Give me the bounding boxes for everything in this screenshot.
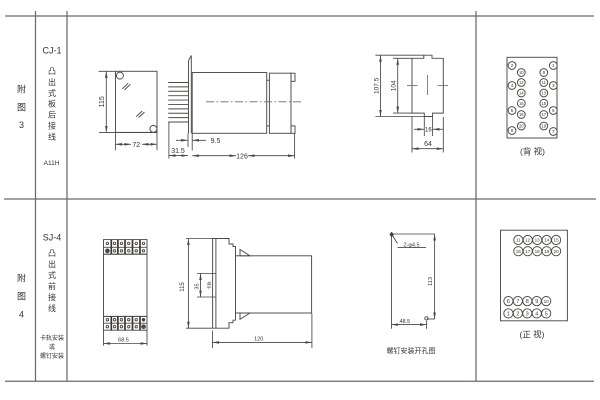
svg-text:6: 6 [511, 108, 514, 113]
svg-text:或: 或 [49, 343, 55, 351]
svg-text:19: 19 [544, 249, 550, 254]
svg-text:7: 7 [552, 129, 555, 134]
svg-text:4: 4 [535, 311, 538, 317]
svg-text:15: 15 [541, 101, 546, 106]
svg-text:图: 图 [17, 103, 26, 113]
svg-text:126: 126 [236, 153, 248, 160]
svg-text:螺钉安装: 螺钉安装 [40, 352, 64, 360]
svg-text:卡轨: 卡轨 [206, 282, 212, 290]
svg-text:3: 3 [19, 120, 24, 130]
svg-text:5: 5 [545, 311, 548, 317]
svg-text:2: 2 [511, 63, 514, 68]
svg-text:5: 5 [552, 108, 555, 113]
svg-text:20: 20 [554, 249, 560, 254]
svg-text:14: 14 [544, 238, 550, 243]
svg-text:螺钉安装开孔图: 螺钉安装开孔图 [387, 346, 436, 355]
svg-text:20: 20 [519, 124, 524, 129]
svg-text:线: 线 [48, 303, 56, 313]
svg-text:9: 9 [542, 70, 545, 75]
svg-text:8: 8 [526, 299, 529, 305]
svg-text:120: 120 [254, 337, 263, 343]
svg-text:CJ-1: CJ-1 [42, 46, 61, 56]
svg-text:7: 7 [516, 299, 519, 305]
svg-text:115: 115 [99, 96, 106, 107]
svg-text:13: 13 [535, 238, 541, 243]
svg-text:接: 接 [48, 292, 56, 302]
svg-text:10: 10 [519, 70, 524, 75]
svg-text:64: 64 [424, 141, 432, 148]
svg-text:12: 12 [519, 80, 524, 85]
svg-text:3: 3 [552, 83, 555, 88]
svg-text:17: 17 [525, 249, 531, 254]
svg-text:6: 6 [507, 299, 510, 305]
svg-text:卡轨安装: 卡轨安装 [40, 334, 64, 342]
svg-text:12: 12 [525, 238, 531, 243]
svg-text:凸: 凸 [48, 249, 56, 258]
svg-text:16: 16 [519, 101, 524, 106]
svg-text:113: 113 [428, 277, 434, 286]
svg-text:13: 13 [541, 91, 546, 96]
svg-text:115: 115 [180, 282, 186, 292]
svg-text:1: 1 [552, 63, 555, 68]
svg-text:板: 板 [48, 99, 56, 109]
svg-text:图: 图 [17, 292, 26, 302]
svg-text:48.5: 48.5 [399, 319, 410, 325]
svg-text:出: 出 [48, 77, 56, 87]
svg-text:凸: 凸 [48, 67, 56, 76]
svg-text:前: 前 [48, 281, 56, 291]
svg-text:4: 4 [19, 310, 24, 320]
svg-text:104: 104 [391, 80, 398, 91]
svg-text:107.5: 107.5 [373, 77, 380, 94]
svg-text:18: 18 [535, 249, 541, 254]
svg-text:附: 附 [17, 273, 26, 284]
svg-text:15: 15 [554, 238, 560, 243]
svg-text:1: 1 [507, 311, 510, 317]
svg-text:72: 72 [132, 142, 140, 149]
svg-text:附: 附 [17, 84, 26, 95]
svg-text:出: 出 [48, 259, 56, 269]
svg-text:14: 14 [519, 91, 524, 96]
svg-text:3: 3 [526, 311, 529, 317]
svg-text:9.5: 9.5 [211, 138, 221, 145]
svg-text:10: 10 [544, 299, 550, 304]
svg-text:68.5: 68.5 [118, 338, 129, 344]
svg-text:8: 8 [511, 128, 514, 133]
svg-text:16: 16 [425, 128, 432, 134]
svg-text:线: 线 [48, 131, 56, 141]
svg-text:35: 35 [194, 283, 200, 289]
svg-text:11: 11 [542, 80, 547, 85]
svg-text:9: 9 [535, 299, 538, 305]
svg-text:(背 视): (背 视) [520, 147, 545, 157]
svg-text:式: 式 [48, 88, 56, 98]
svg-text:18: 18 [519, 112, 524, 117]
svg-text:SJ-4: SJ-4 [43, 233, 62, 243]
svg-text:A11H: A11H [44, 160, 60, 167]
svg-text:2-φ4.5: 2-φ4.5 [403, 242, 419, 248]
svg-text:(正 视): (正 视) [519, 330, 544, 340]
svg-text:后: 后 [48, 110, 56, 120]
svg-text:接: 接 [48, 121, 56, 131]
svg-text:17: 17 [541, 112, 546, 117]
svg-text:19: 19 [541, 124, 546, 129]
svg-text:16: 16 [516, 249, 522, 254]
svg-text:式: 式 [48, 270, 56, 280]
svg-text:4: 4 [511, 83, 514, 88]
svg-text:11: 11 [516, 238, 521, 243]
svg-text:31.5: 31.5 [171, 148, 185, 155]
svg-text:2: 2 [516, 311, 519, 317]
